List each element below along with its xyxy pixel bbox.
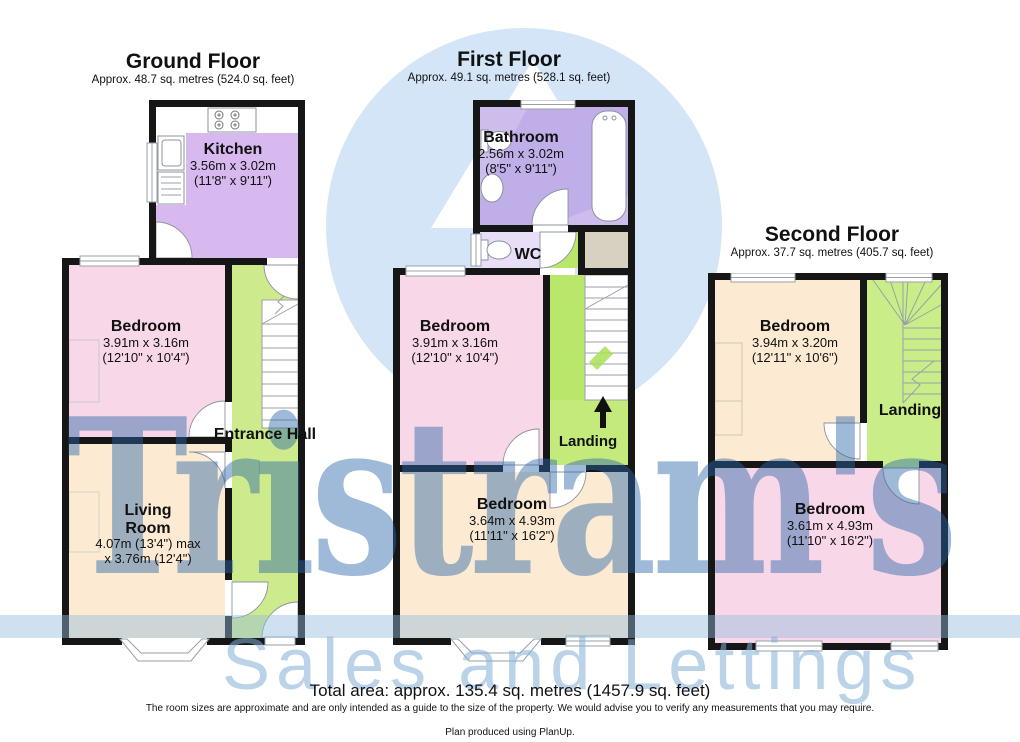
second-floor-title: Second Floor bbox=[712, 223, 952, 247]
ground-floor-plan bbox=[62, 100, 305, 666]
first-landing bbox=[550, 400, 628, 465]
bay-window bbox=[451, 639, 541, 661]
first-floor-drawing bbox=[393, 100, 635, 668]
bay-window bbox=[120, 639, 209, 661]
toilet bbox=[487, 132, 511, 151]
wc-toilet bbox=[487, 241, 511, 259]
ground-floor-subtitle: Approx. 48.7 sq. metres (524.0 sq. feet) bbox=[73, 74, 313, 86]
second-floor-plan bbox=[708, 273, 948, 655]
produced-by-text: Plan produced using PlanUp. bbox=[0, 727, 1020, 738]
bathtub bbox=[592, 111, 626, 221]
second-floor-subtitle: Approx. 37.7 sq. metres (405.7 sq. feet) bbox=[712, 247, 952, 259]
living-room bbox=[69, 444, 225, 638]
hob bbox=[208, 108, 256, 132]
first-bedroom2-room bbox=[400, 472, 628, 638]
first-floor-subtitle: Approx. 49.1 sq. metres (528.1 sq. feet) bbox=[389, 72, 629, 84]
total-area-text: Total area: approx. 135.4 sq. metres (14… bbox=[0, 681, 1020, 701]
ground-floor-drawing bbox=[62, 100, 305, 666]
front-threshold bbox=[265, 637, 295, 645]
basin bbox=[481, 174, 503, 202]
first-floor-title: First Floor bbox=[389, 48, 629, 72]
store-closet bbox=[585, 232, 628, 268]
ground-floor-title: Ground Floor bbox=[73, 50, 313, 74]
disclaimer-text: The room sizes are approximate and are o… bbox=[108, 703, 912, 715]
floorplan-page: Ground Floor Approx. 48.7 sq. metres (52… bbox=[0, 0, 1020, 742]
second-landing bbox=[867, 280, 941, 468]
staircase bbox=[585, 275, 628, 400]
second-floor-drawing bbox=[708, 273, 948, 655]
staircase bbox=[262, 294, 298, 428]
first-floor-plan bbox=[393, 100, 635, 668]
